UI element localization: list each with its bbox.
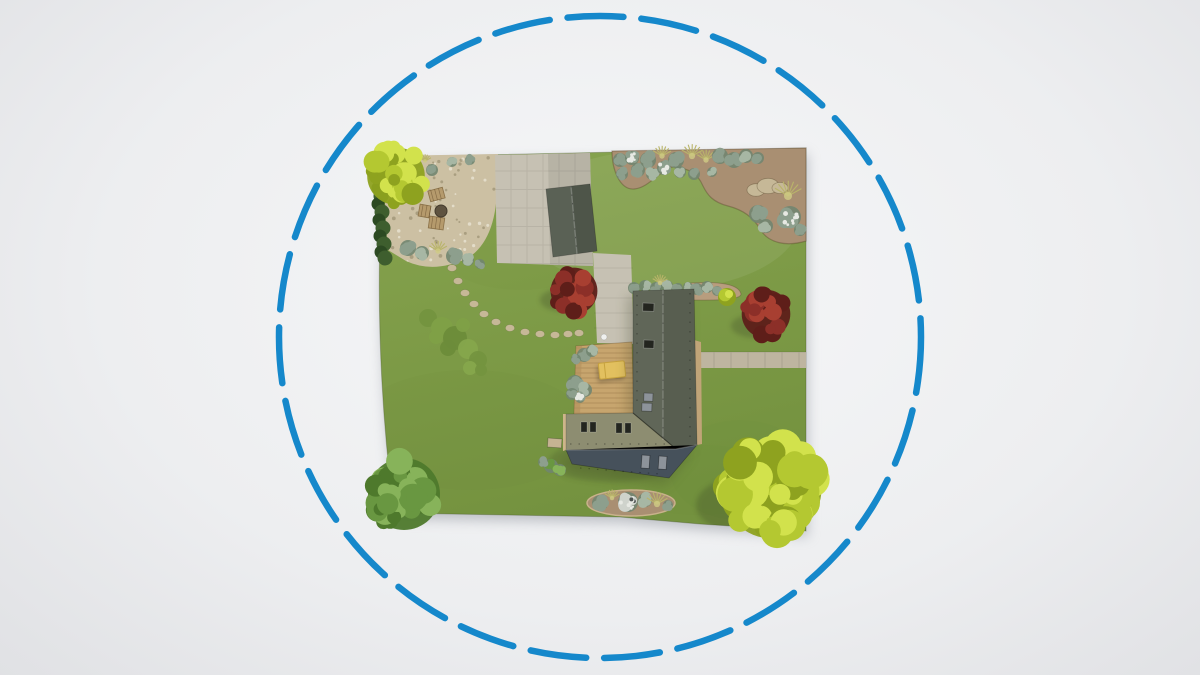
slate-roof-window — [658, 456, 667, 470]
daybed — [598, 361, 626, 380]
shrub-blob — [558, 467, 563, 472]
shrub-blob — [589, 345, 597, 353]
gravel-speckle — [449, 167, 452, 170]
stage — [0, 0, 1200, 675]
shrub-blob — [644, 283, 649, 288]
flower-dot — [663, 171, 667, 175]
red-bush-blob — [754, 286, 770, 302]
flower-dot — [791, 219, 794, 222]
gravel-speckle — [445, 189, 448, 192]
shrub-blob — [450, 248, 458, 256]
shrub-blob — [707, 171, 712, 176]
stepping-stone — [520, 329, 529, 336]
red-bush-blob — [748, 303, 761, 316]
porch-step — [547, 438, 562, 448]
gravel-speckle — [492, 188, 495, 191]
gravel-speckle — [437, 160, 440, 163]
stepping-stone — [550, 332, 559, 339]
flower-dot — [792, 222, 794, 224]
red-bush-blob — [565, 303, 582, 320]
shrub-blob — [689, 169, 697, 177]
gravel-speckle — [477, 236, 480, 239]
foliage-blob — [377, 493, 398, 514]
shrub-blob — [402, 242, 413, 253]
shrub-blob — [676, 285, 681, 290]
gravel-speckle — [464, 240, 467, 243]
red-bush-blob — [560, 282, 575, 297]
gravel-speckle — [452, 205, 455, 208]
garden-ball — [601, 334, 607, 340]
gravel-speckle — [432, 237, 434, 239]
tree-yellow-top-left — [364, 141, 430, 210]
shrub-blob — [704, 288, 709, 293]
gravel-speckle — [453, 239, 455, 241]
gravel-speckle — [392, 216, 396, 220]
gravel-speckle — [486, 224, 489, 227]
gravel-speckle — [456, 218, 458, 220]
round-table — [435, 205, 447, 217]
gravel-speckle — [482, 226, 485, 229]
stepping-stone — [491, 319, 500, 326]
gravel-speckle — [440, 180, 443, 183]
skylight-dark — [644, 340, 654, 348]
shrub-blob — [619, 167, 627, 175]
flower-dot — [783, 211, 788, 216]
foliage-blob — [368, 151, 390, 173]
gravel-speckle — [411, 207, 414, 210]
shrub-blob — [666, 500, 671, 505]
grass-tuft-base — [689, 153, 695, 159]
stepping-stone — [469, 301, 478, 308]
flower-dot — [794, 212, 798, 216]
gravel-speckle — [433, 176, 436, 179]
stepping-stone — [479, 311, 488, 318]
gravel-speckle — [454, 173, 457, 176]
gravel-speckle — [459, 159, 462, 162]
shrub-blob — [614, 157, 622, 165]
gravel-speckle — [398, 212, 401, 215]
foliage-blob — [769, 484, 790, 505]
stepping-stone — [563, 331, 572, 338]
gravel-speckle — [459, 233, 461, 235]
gravel-speckle — [439, 254, 443, 258]
foliage-blob — [793, 454, 828, 489]
flower-dot — [619, 501, 623, 505]
stepping-stone — [453, 278, 462, 285]
stepping-stone — [574, 330, 583, 337]
skylight-gray — [644, 393, 653, 401]
khaki-roof-window — [590, 422, 596, 432]
grass-tuft-base — [610, 496, 615, 501]
gravel-speckle — [471, 177, 474, 180]
shrub-blob — [763, 227, 769, 233]
gravel-speckle — [486, 156, 489, 159]
foliage-blob — [405, 147, 423, 165]
grass-tuft-base — [703, 157, 708, 162]
flower-dot — [793, 216, 796, 219]
gravel-speckle — [434, 163, 436, 165]
shrub-blob — [579, 384, 585, 390]
gravel-speckle — [468, 222, 472, 226]
flower-dot — [633, 159, 635, 161]
shrub-blob — [724, 155, 735, 166]
shrub-blob — [799, 225, 807, 233]
gravel-speckle — [397, 229, 401, 233]
shrub-blob — [718, 148, 725, 155]
shrub-blob — [446, 160, 452, 166]
stepping-stone — [447, 265, 456, 272]
shrub-blob — [575, 358, 580, 363]
shrub-blob — [752, 211, 761, 220]
ground-shrub — [429, 330, 443, 344]
flower-dot — [786, 223, 789, 226]
gravel-speckle — [463, 248, 466, 251]
shrub-blob — [680, 168, 685, 173]
gravel-speckle — [458, 221, 460, 223]
gravel-speckle — [398, 236, 401, 239]
gravel-speckle — [419, 229, 422, 232]
skylight-gray — [642, 403, 652, 411]
stepping-stone — [505, 325, 514, 332]
shrub-blob — [740, 154, 746, 160]
shrub-blob — [418, 252, 427, 261]
foliage-blob — [406, 487, 428, 509]
grass-tuft-base — [658, 281, 663, 286]
skylight-dark — [643, 303, 654, 311]
flower-dot — [627, 503, 631, 507]
ground-shrub — [475, 364, 487, 376]
gravel-speckle — [429, 258, 432, 261]
shrub-blob — [478, 263, 484, 269]
gravel-speckle — [391, 246, 394, 249]
bottom-flower-bed — [587, 490, 675, 516]
daybed-group — [596, 361, 626, 383]
grass-tuft-base — [659, 153, 664, 158]
shrub-blob — [694, 283, 700, 289]
garden-shed — [546, 184, 597, 257]
gravel-speckle — [473, 169, 476, 172]
khaki-roof-window — [616, 423, 622, 433]
red-bush-blob — [575, 270, 592, 287]
gravel-speckle — [409, 216, 413, 220]
stepping-stone — [460, 290, 469, 297]
gravel-speckle — [464, 232, 467, 235]
ground-shrub — [463, 361, 477, 375]
gravel-speckle — [447, 227, 449, 229]
shrub-blob — [717, 156, 724, 163]
aerial-property-scene — [0, 0, 1200, 675]
foliage-blob — [388, 174, 400, 186]
flower-dot — [627, 158, 629, 160]
ground-shrub — [440, 340, 456, 356]
wooden-lounger — [428, 216, 445, 230]
flower-dot — [577, 392, 581, 396]
shrub-blob — [644, 150, 655, 161]
foliage-blob — [759, 520, 781, 542]
shrub-blob — [600, 499, 609, 508]
gravel-speckle — [432, 161, 434, 163]
shrub-blob — [542, 460, 548, 466]
gravel-speckle — [484, 179, 487, 182]
shrub-blob — [463, 259, 469, 265]
foliage-blob — [402, 183, 424, 205]
grass-tuft-base — [435, 248, 440, 253]
flower-dot — [632, 506, 634, 508]
flower-dot — [629, 497, 633, 501]
foliage-blob — [723, 446, 757, 480]
shrub-blob — [426, 165, 434, 173]
shrub-blob — [633, 284, 640, 291]
red-bush-blob — [574, 294, 585, 305]
flower-dot — [783, 220, 788, 225]
gravel-speckle — [457, 169, 460, 172]
khaki-roof-window — [625, 423, 631, 433]
grass-tuft-base — [654, 501, 660, 507]
shrub-blob — [754, 154, 762, 162]
shrub-blob — [470, 156, 475, 161]
gravel-speckle — [455, 193, 457, 195]
gravel-speckle — [472, 244, 475, 247]
shrub-blob — [632, 166, 639, 173]
flower-dot — [633, 152, 636, 155]
grass-tuft-base — [423, 159, 427, 163]
khaki-roof-window — [581, 422, 587, 432]
shrub-blob — [665, 280, 672, 287]
flower-dot — [658, 163, 662, 167]
gravel-speckle — [458, 162, 461, 165]
shrub-blob — [568, 392, 574, 398]
wooden-lounger — [418, 204, 431, 218]
shrub-blob — [672, 160, 679, 167]
stepping-stone — [535, 331, 544, 338]
gravel-speckle — [478, 222, 481, 225]
foliage-blob — [386, 448, 413, 475]
hedge-blob — [378, 251, 393, 266]
red-bush-blob — [765, 324, 776, 335]
yellow-bush-highlight — [725, 290, 733, 298]
house-left-wall — [563, 414, 566, 451]
slate-roof-window — [641, 455, 650, 469]
ground-shrub — [456, 318, 470, 332]
grass-tuft-base — [784, 192, 792, 200]
side-path — [697, 352, 806, 368]
